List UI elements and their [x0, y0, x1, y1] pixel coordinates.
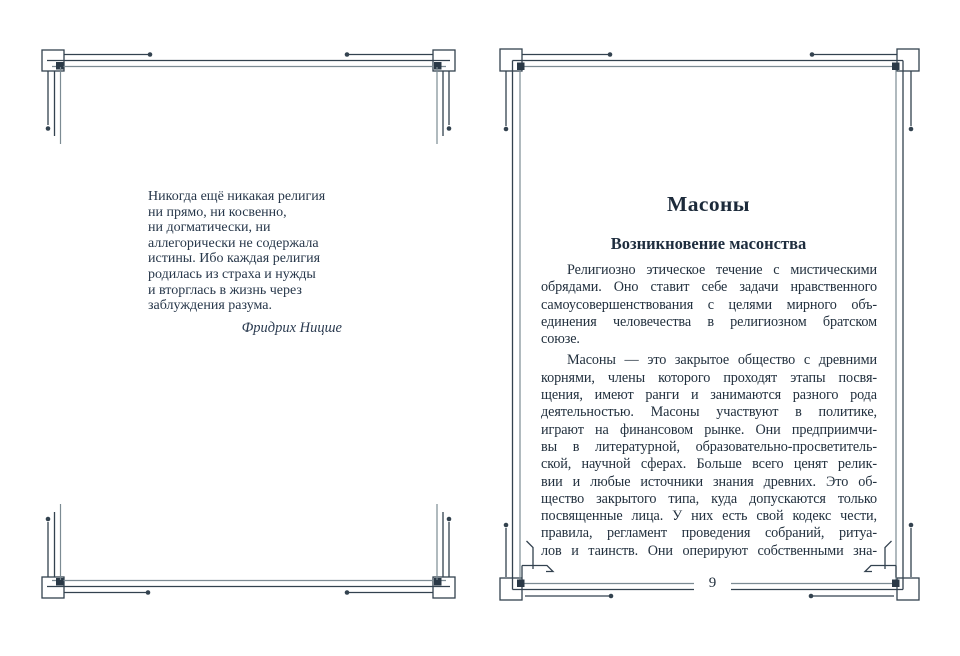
body-line: ской, научной сферах. Больше всего ценят…: [541, 456, 877, 473]
flourish-icon: [522, 566, 553, 572]
filled-square-icon: [434, 62, 442, 70]
flourish-icon: [527, 541, 534, 569]
body-line: играют на финансовом рынке. Они предприи…: [541, 422, 877, 439]
dot-icon: [345, 52, 350, 57]
body-text: Религиозно этическое течение с мистическ…: [541, 262, 877, 560]
filled-square-icon: [56, 62, 64, 70]
quote-line: родилась из страха и нужды: [148, 267, 348, 283]
filled-square-icon: [517, 580, 525, 588]
quote-line: Никогда ещё никакая религия: [148, 189, 348, 205]
epigraph-attribution: Фридрих Ницше: [148, 321, 348, 337]
body-line: щения, имеют ранги и занимаются разного …: [541, 387, 877, 404]
dot-icon: [345, 590, 350, 595]
epigraph-quote: Никогда ещё никакая религияни прямо, ни …: [148, 189, 348, 336]
paragraph: Масоны — это закрытое общество с древним…: [541, 352, 877, 560]
body-line: корнями, члены которого проходят этапы п…: [541, 370, 877, 387]
body-line: Масоны — это закрытое общество с древним…: [541, 352, 877, 369]
body-line: единения человечества в религиозном брат…: [541, 314, 877, 331]
corner-square-icon: [500, 578, 522, 600]
filled-square-icon: [892, 580, 900, 588]
body-line: щество закрытого типа, куда допускаются …: [541, 491, 877, 508]
left-page-top-border: [42, 50, 455, 144]
dot-icon: [146, 590, 151, 595]
body-line: самоусовершенствования с целями мирного …: [541, 297, 877, 314]
paragraph: Религиозно этическое течение с мистическ…: [541, 262, 877, 348]
dot-icon: [608, 52, 613, 57]
filled-square-icon: [56, 578, 64, 586]
corner-square-icon: [42, 577, 64, 598]
dot-icon: [909, 523, 914, 528]
section-subtitle: Возникновение масонства: [540, 234, 877, 254]
filled-square-icon: [517, 63, 525, 71]
body-line: союзе.: [541, 331, 877, 348]
corner-square-icon: [42, 50, 64, 71]
corner-square-icon: [897, 49, 919, 71]
corner-square-icon: [433, 50, 455, 71]
dot-icon: [609, 594, 614, 599]
dot-icon: [148, 52, 153, 57]
filled-square-icon: [434, 578, 442, 586]
quote-line: ни догматически, ни: [148, 220, 348, 236]
flourish-icon: [885, 541, 892, 569]
quote-line: заблуждения разума.: [148, 298, 348, 314]
filled-square-icon: [892, 63, 900, 71]
dot-icon: [46, 517, 51, 522]
left-page-bottom-border: [42, 504, 455, 598]
body-line: вии и любые источники знания древних. Эт…: [541, 474, 877, 491]
dot-icon: [809, 594, 814, 599]
body-line: посвященные лица. У них есть свой кодекс…: [541, 508, 877, 525]
corner-square-icon: [500, 49, 522, 71]
body-line: вы в литературной, образовательно-просве…: [541, 439, 877, 456]
quote-line: ни прямо, ни косвенно,: [148, 205, 348, 221]
page-number: 9: [694, 575, 731, 592]
body-line: обрядами. Оно ставит себе задачи нравств…: [541, 279, 877, 296]
dot-icon: [447, 517, 452, 522]
quote-line: аллегорически не содержала: [148, 236, 348, 252]
quote-line: и вторглась в жизнь через: [148, 283, 348, 299]
corner-square-icon: [433, 577, 455, 598]
dot-icon: [504, 523, 509, 528]
body-line: правила, регламент проведения собраний, …: [541, 525, 877, 542]
body-line: деятельностью. Масоны участвуют в полити…: [541, 404, 877, 421]
chapter-title: Масоны: [540, 192, 877, 217]
epigraph-lines: Никогда ещё никакая религияни прямо, ни …: [148, 189, 348, 314]
dot-icon: [909, 127, 914, 132]
quote-line: истины. Ибо каждая религия: [148, 251, 348, 267]
body-line: лов и таинств. Они оперируют собственным…: [541, 543, 877, 560]
dot-icon: [447, 126, 452, 131]
body-line: Религиозно этическое течение с мистическ…: [541, 262, 877, 279]
flourish-icon: [865, 566, 896, 572]
dot-icon: [810, 52, 815, 57]
dot-icon: [46, 126, 51, 131]
book-spread: { "left_page": { "quote_lines": [ "Никог…: [0, 0, 960, 656]
corner-square-icon: [897, 578, 919, 600]
dot-icon: [504, 127, 509, 132]
